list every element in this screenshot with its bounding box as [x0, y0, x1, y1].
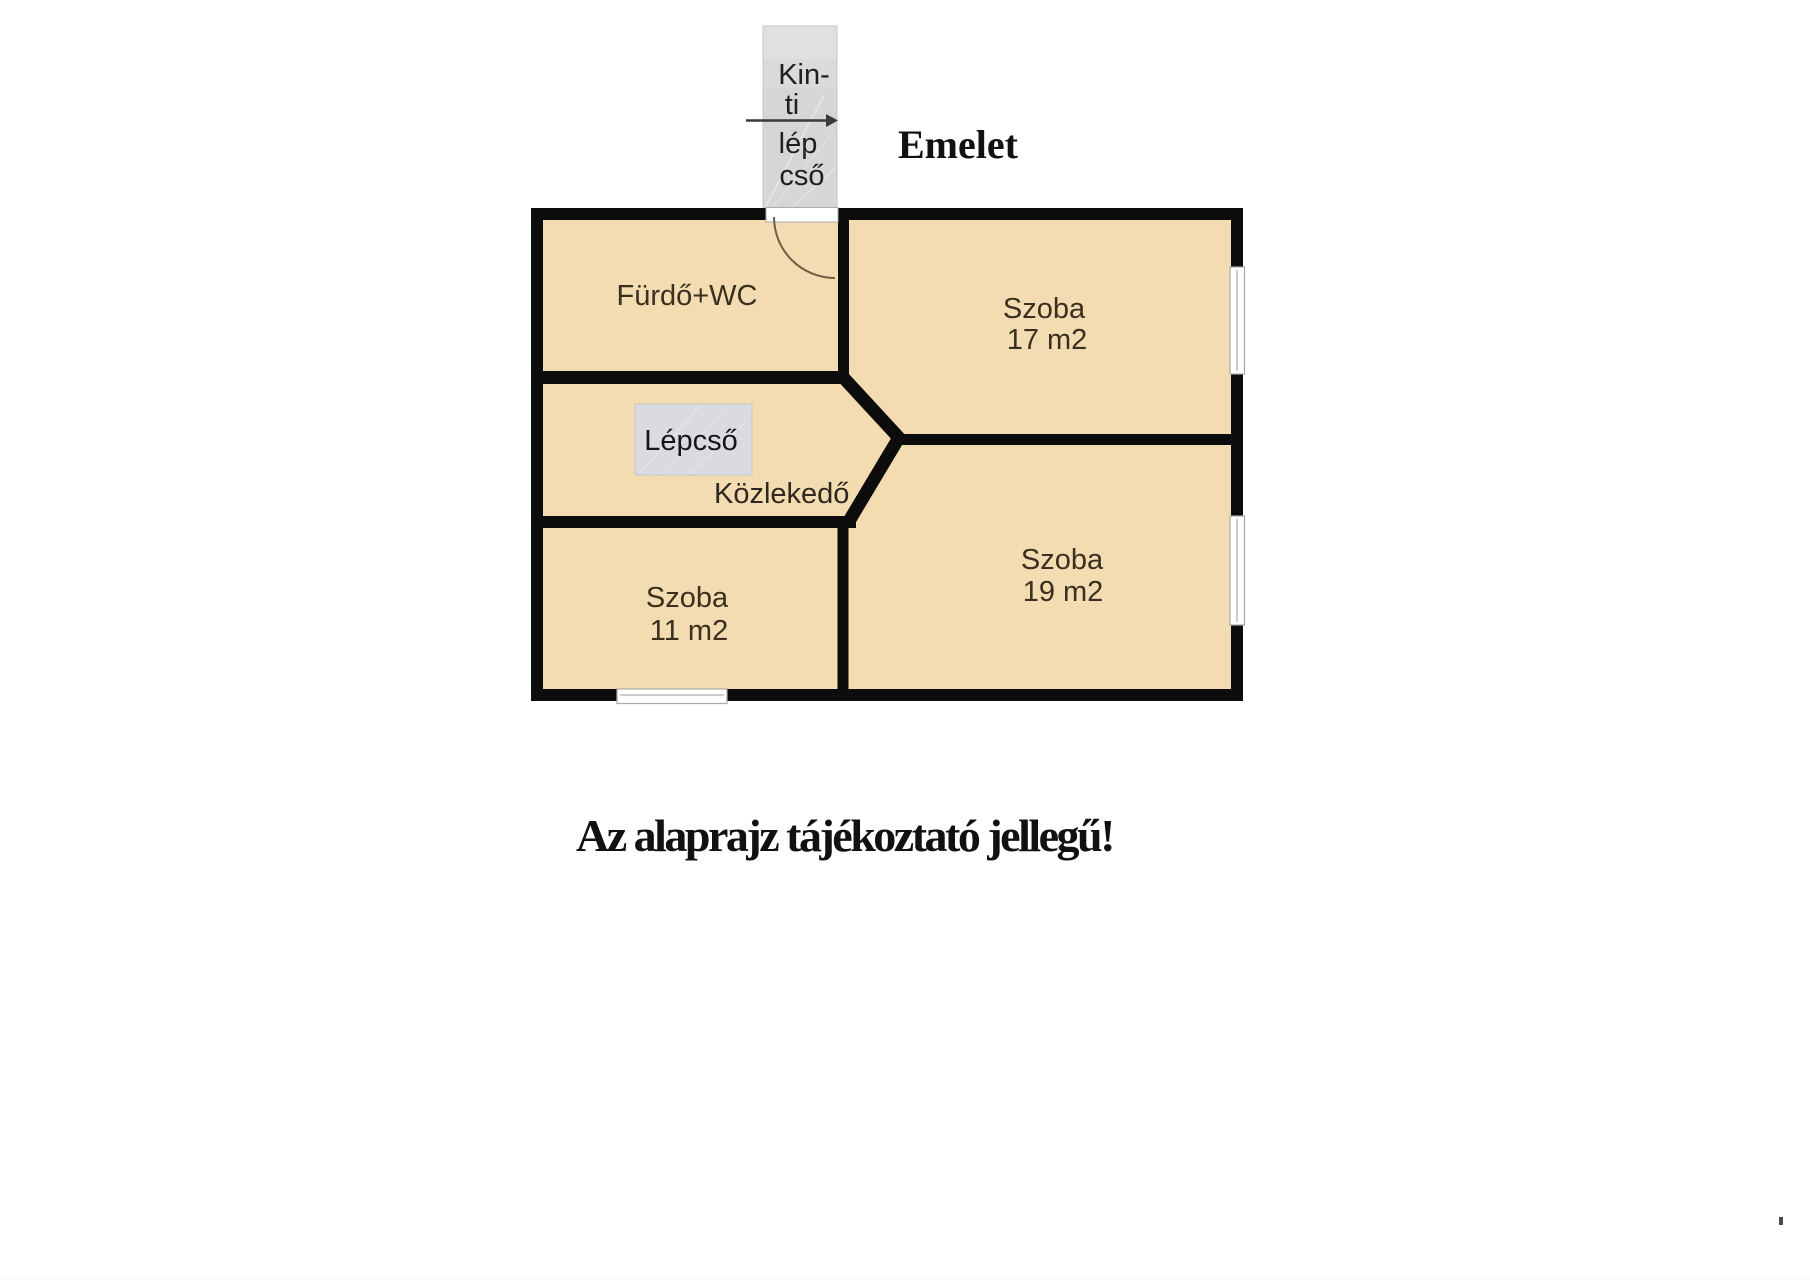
svg-text:11 m2: 11 m2: [650, 615, 728, 647]
svg-text:Szoba: Szoba: [1003, 293, 1086, 325]
svg-text:Az alaprajz tájékoztató jelleg: Az alaprajz tájékoztató jellegű!: [576, 810, 1113, 861]
svg-text:Kin-: Kin-: [778, 59, 830, 91]
svg-text:lép: lép: [779, 128, 818, 160]
svg-text:Közlekedő: Közlekedő: [714, 478, 849, 510]
svg-text:Szoba: Szoba: [1021, 544, 1104, 576]
svg-text:Fürdő+WC: Fürdő+WC: [616, 280, 757, 312]
svg-text:19 m2: 19 m2: [1023, 576, 1104, 608]
svg-text:Emelet: Emelet: [898, 122, 1019, 167]
svg-text:cső: cső: [779, 160, 824, 192]
svg-text:17 m2: 17 m2: [1007, 324, 1088, 356]
svg-text:Lépcső: Lépcső: [644, 425, 738, 457]
svg-text:ti: ti: [785, 89, 800, 121]
svg-text:Szoba: Szoba: [646, 582, 729, 614]
